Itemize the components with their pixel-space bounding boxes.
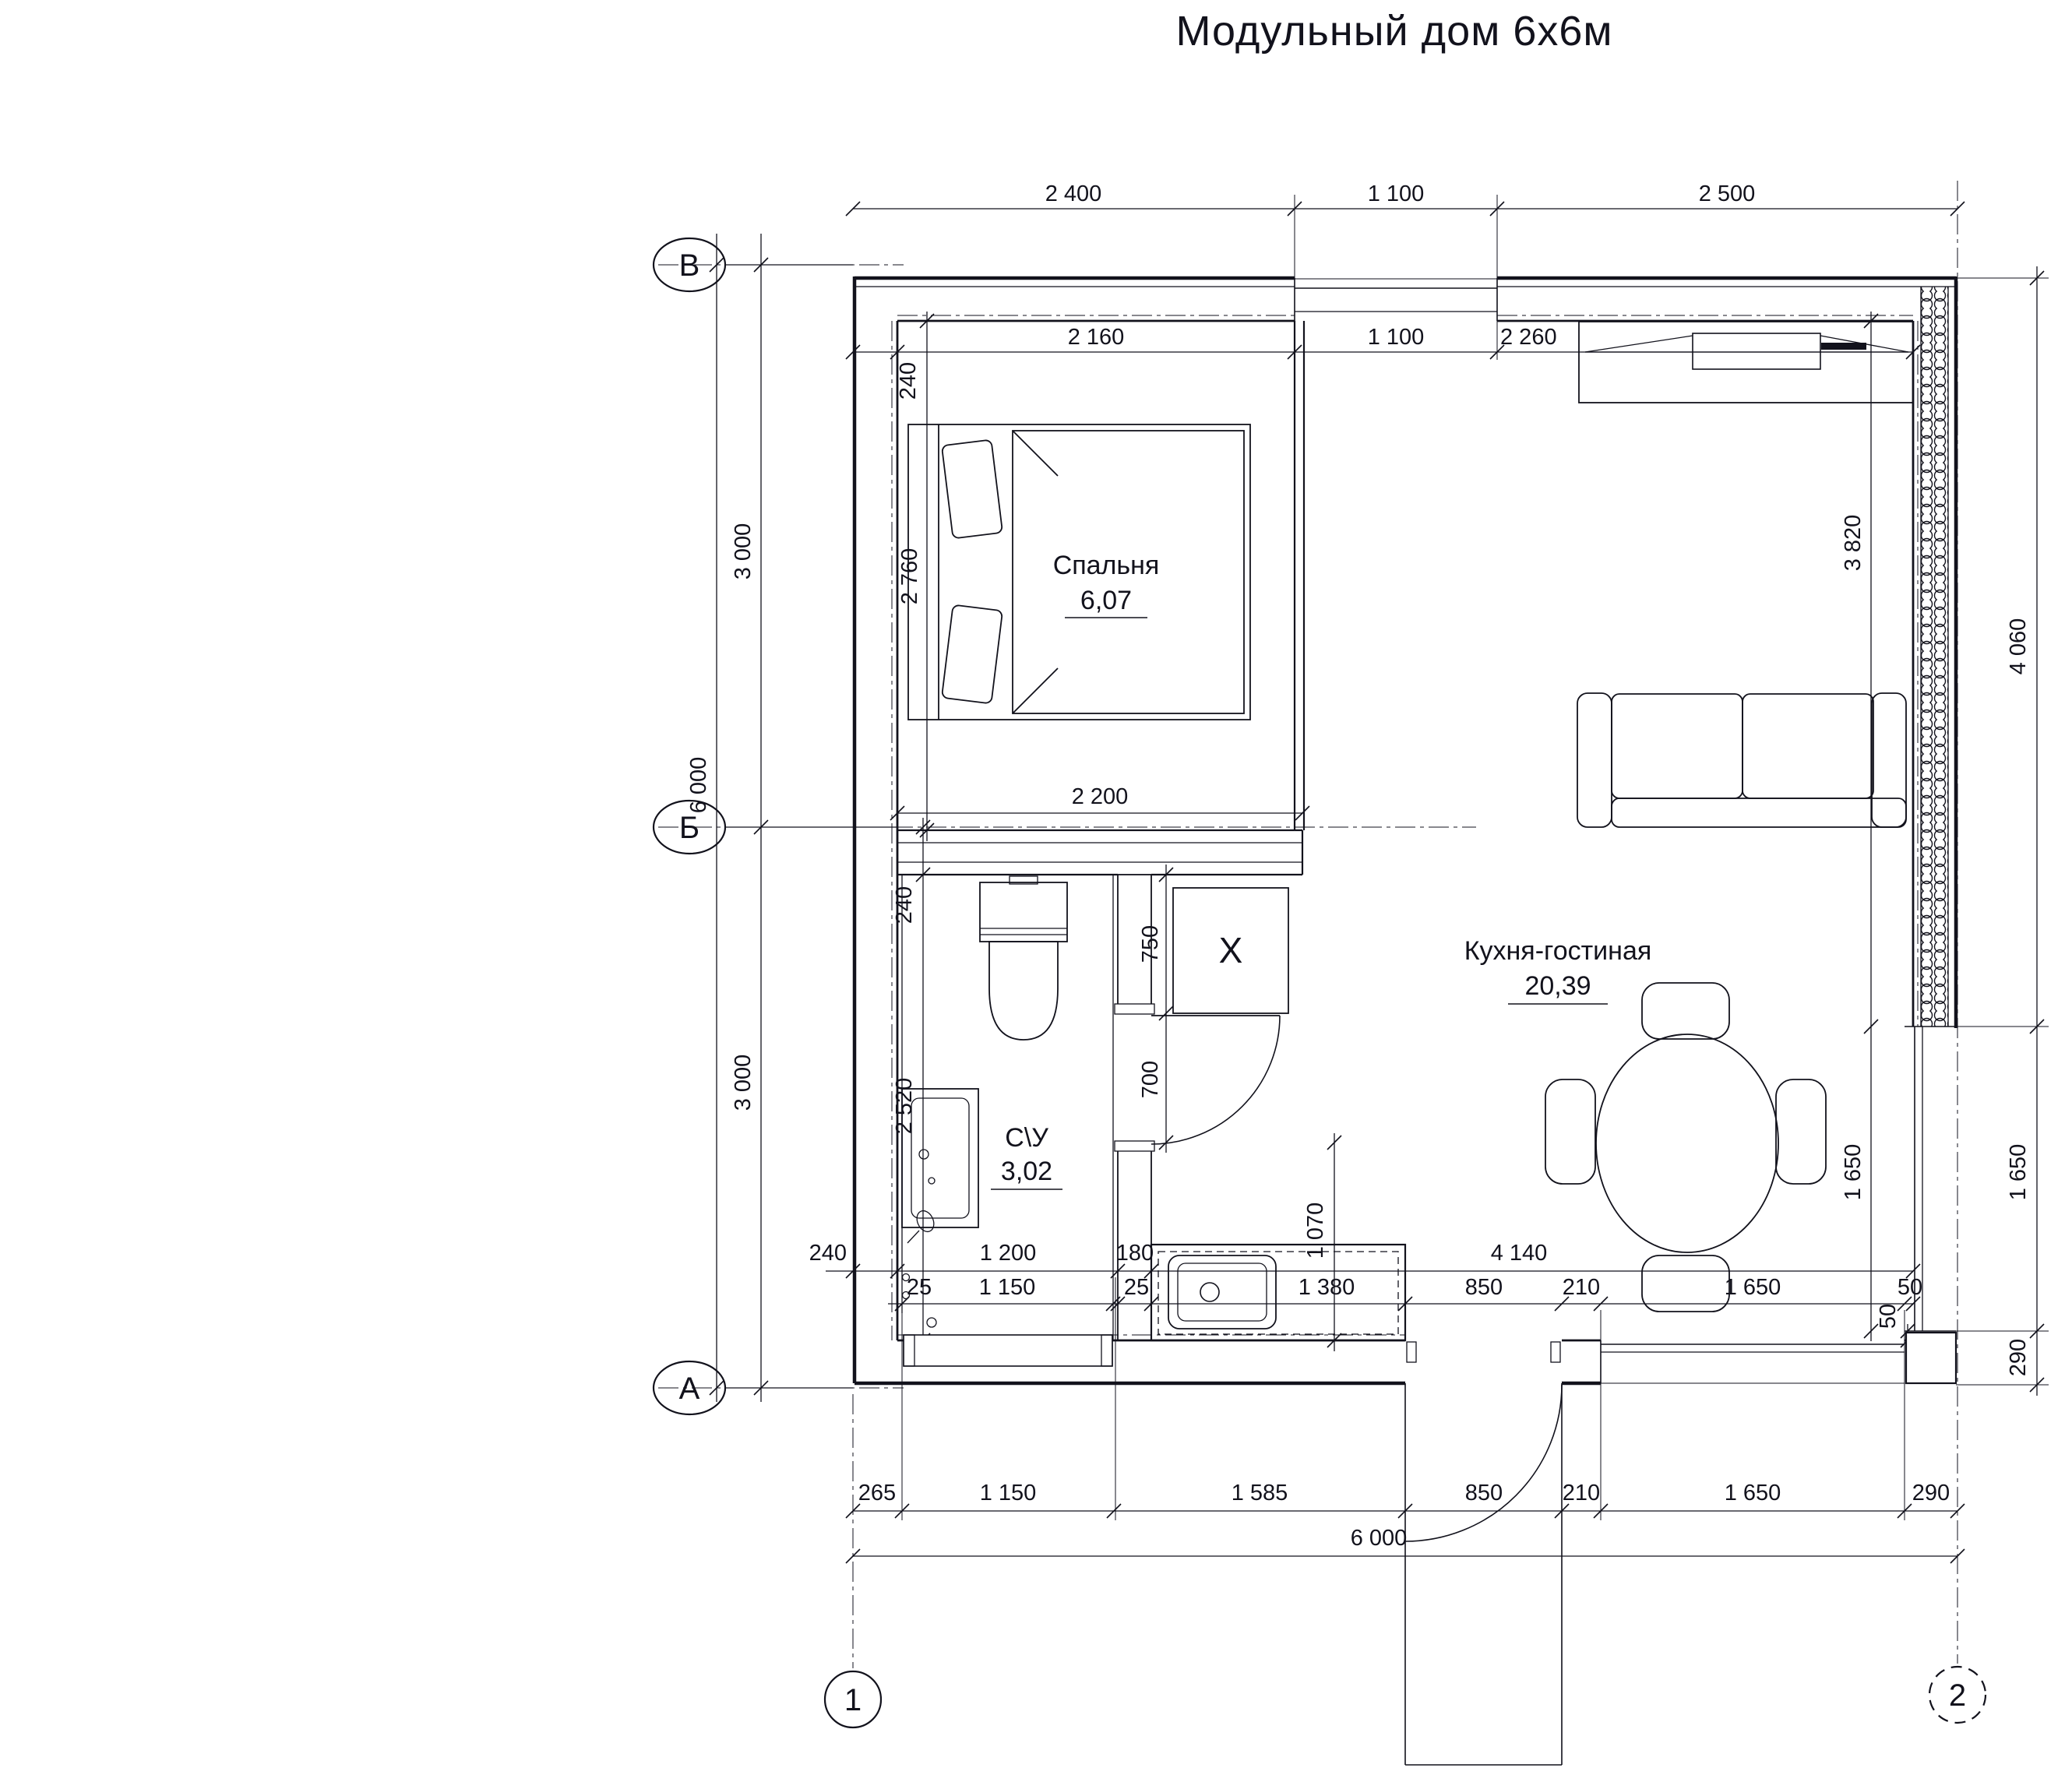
dim-label: 1 150 (980, 1481, 1037, 1506)
axis-label-b: Б (679, 811, 699, 845)
dim-label: 290 (1912, 1481, 1950, 1506)
shower-fittings (903, 1208, 937, 1327)
dim-label: 4 060 (2006, 618, 2031, 675)
dim-label: 850 (1465, 1481, 1503, 1506)
dining-table-with-chairs (1545, 983, 1826, 1312)
sink-drain (1200, 1283, 1219, 1301)
dim-label: 50 (1876, 1304, 1901, 1329)
axis-label-v: В (679, 248, 700, 283)
cooktop-handle (1821, 343, 1866, 350)
entrance-door (1405, 1342, 1562, 1765)
washing-machine: X (1173, 888, 1288, 1013)
dim-label: 2 160 (1068, 325, 1125, 350)
washing-machine-label: X (1219, 930, 1243, 970)
dim-label: 1 650 (1725, 1481, 1781, 1506)
dim-label: 3 000 (731, 1055, 756, 1111)
kitchen-sink (1168, 1255, 1276, 1329)
dim-label: 25 (907, 1275, 932, 1300)
dim-label: 180 (1116, 1241, 1154, 1266)
window-top (1295, 278, 1497, 321)
axis-label-a: А (679, 1372, 700, 1406)
room-area-bedroom: 6,07 (1080, 586, 1132, 615)
dim-label: 240 (892, 886, 917, 924)
dim-label: 2 500 (1699, 181, 1756, 206)
dim-label: 50 (1898, 1275, 1922, 1300)
dim-label: 240 (896, 362, 921, 400)
dim-label: 4 140 (1491, 1241, 1548, 1266)
dim-label: 700 (1138, 1061, 1163, 1098)
dim-label: 2 520 (892, 1078, 917, 1135)
toilet (980, 876, 1067, 1040)
window-bottom (1601, 1340, 1905, 1383)
dim-label: 1 650 (1841, 1144, 1866, 1201)
dim-label: 210 (1563, 1481, 1600, 1506)
floor-plan-page: Модульный дом 6х6м (0, 0, 2072, 1789)
dim-label: 3 820 (1841, 515, 1866, 572)
dim-label: 1 150 (979, 1275, 1036, 1300)
dim-label: 1 585 (1232, 1481, 1288, 1506)
dim-label: 2 400 (1045, 181, 1102, 206)
partition-bathroom (902, 875, 1154, 1340)
dim-label: 850 (1465, 1275, 1503, 1300)
axis-label-2: 2 (1949, 1678, 1966, 1713)
dim-label: 6 000 (1351, 1526, 1408, 1551)
room-labels: Спальня 6,07 Кухня-гостиная 20,39 С\У 3,… (991, 551, 1651, 1189)
dim-label: 265 (858, 1481, 896, 1506)
bathroom-bottom-lining (904, 1335, 1112, 1366)
dim-label: 210 (1563, 1275, 1600, 1300)
dim-label: 1 650 (1725, 1275, 1781, 1300)
dim-label: 1 650 (2006, 1144, 2031, 1201)
dim-label: 1 100 (1368, 181, 1425, 206)
dim-label: 2 200 (1072, 784, 1129, 809)
dim-label: 1 380 (1299, 1275, 1355, 1300)
room-name-living: Кухня-гостиная (1464, 936, 1652, 966)
dim-label: 750 (1138, 925, 1163, 963)
dim-label: 1 200 (980, 1241, 1037, 1266)
dim-label: 240 (809, 1241, 847, 1266)
dim-label: 1 070 (1303, 1203, 1328, 1259)
room-name-bedroom: Спальня (1053, 551, 1160, 580)
dimension-labels: 2 400 1 100 2 500 240 2 160 1 100 2 260 … (686, 181, 2031, 1551)
room-name-bathroom: С\У (1005, 1123, 1048, 1153)
dim-label: 25 (1124, 1275, 1149, 1300)
kitchen-counter-bottom (1151, 1245, 1405, 1340)
floor-plan-drawing: Модульный дом 6х6м (0, 0, 2072, 1789)
drawing-title: Модульный дом 6х6м (1175, 8, 1612, 55)
room-area-bathroom: 3,02 (1001, 1157, 1052, 1186)
bathroom-door (1151, 1016, 1280, 1144)
sofa (1577, 693, 1906, 827)
dim-label: 2 760 (897, 548, 922, 605)
axis-label-1: 1 (844, 1683, 862, 1717)
dim-label: 2 260 (1500, 325, 1557, 350)
dim-label: 3 000 (731, 523, 756, 580)
room-area-living: 20,39 (1524, 971, 1591, 1001)
dim-label: 290 (2006, 1339, 2031, 1376)
kitchen-counter-top (1579, 322, 1913, 403)
dim-label: 1 100 (1368, 325, 1425, 350)
